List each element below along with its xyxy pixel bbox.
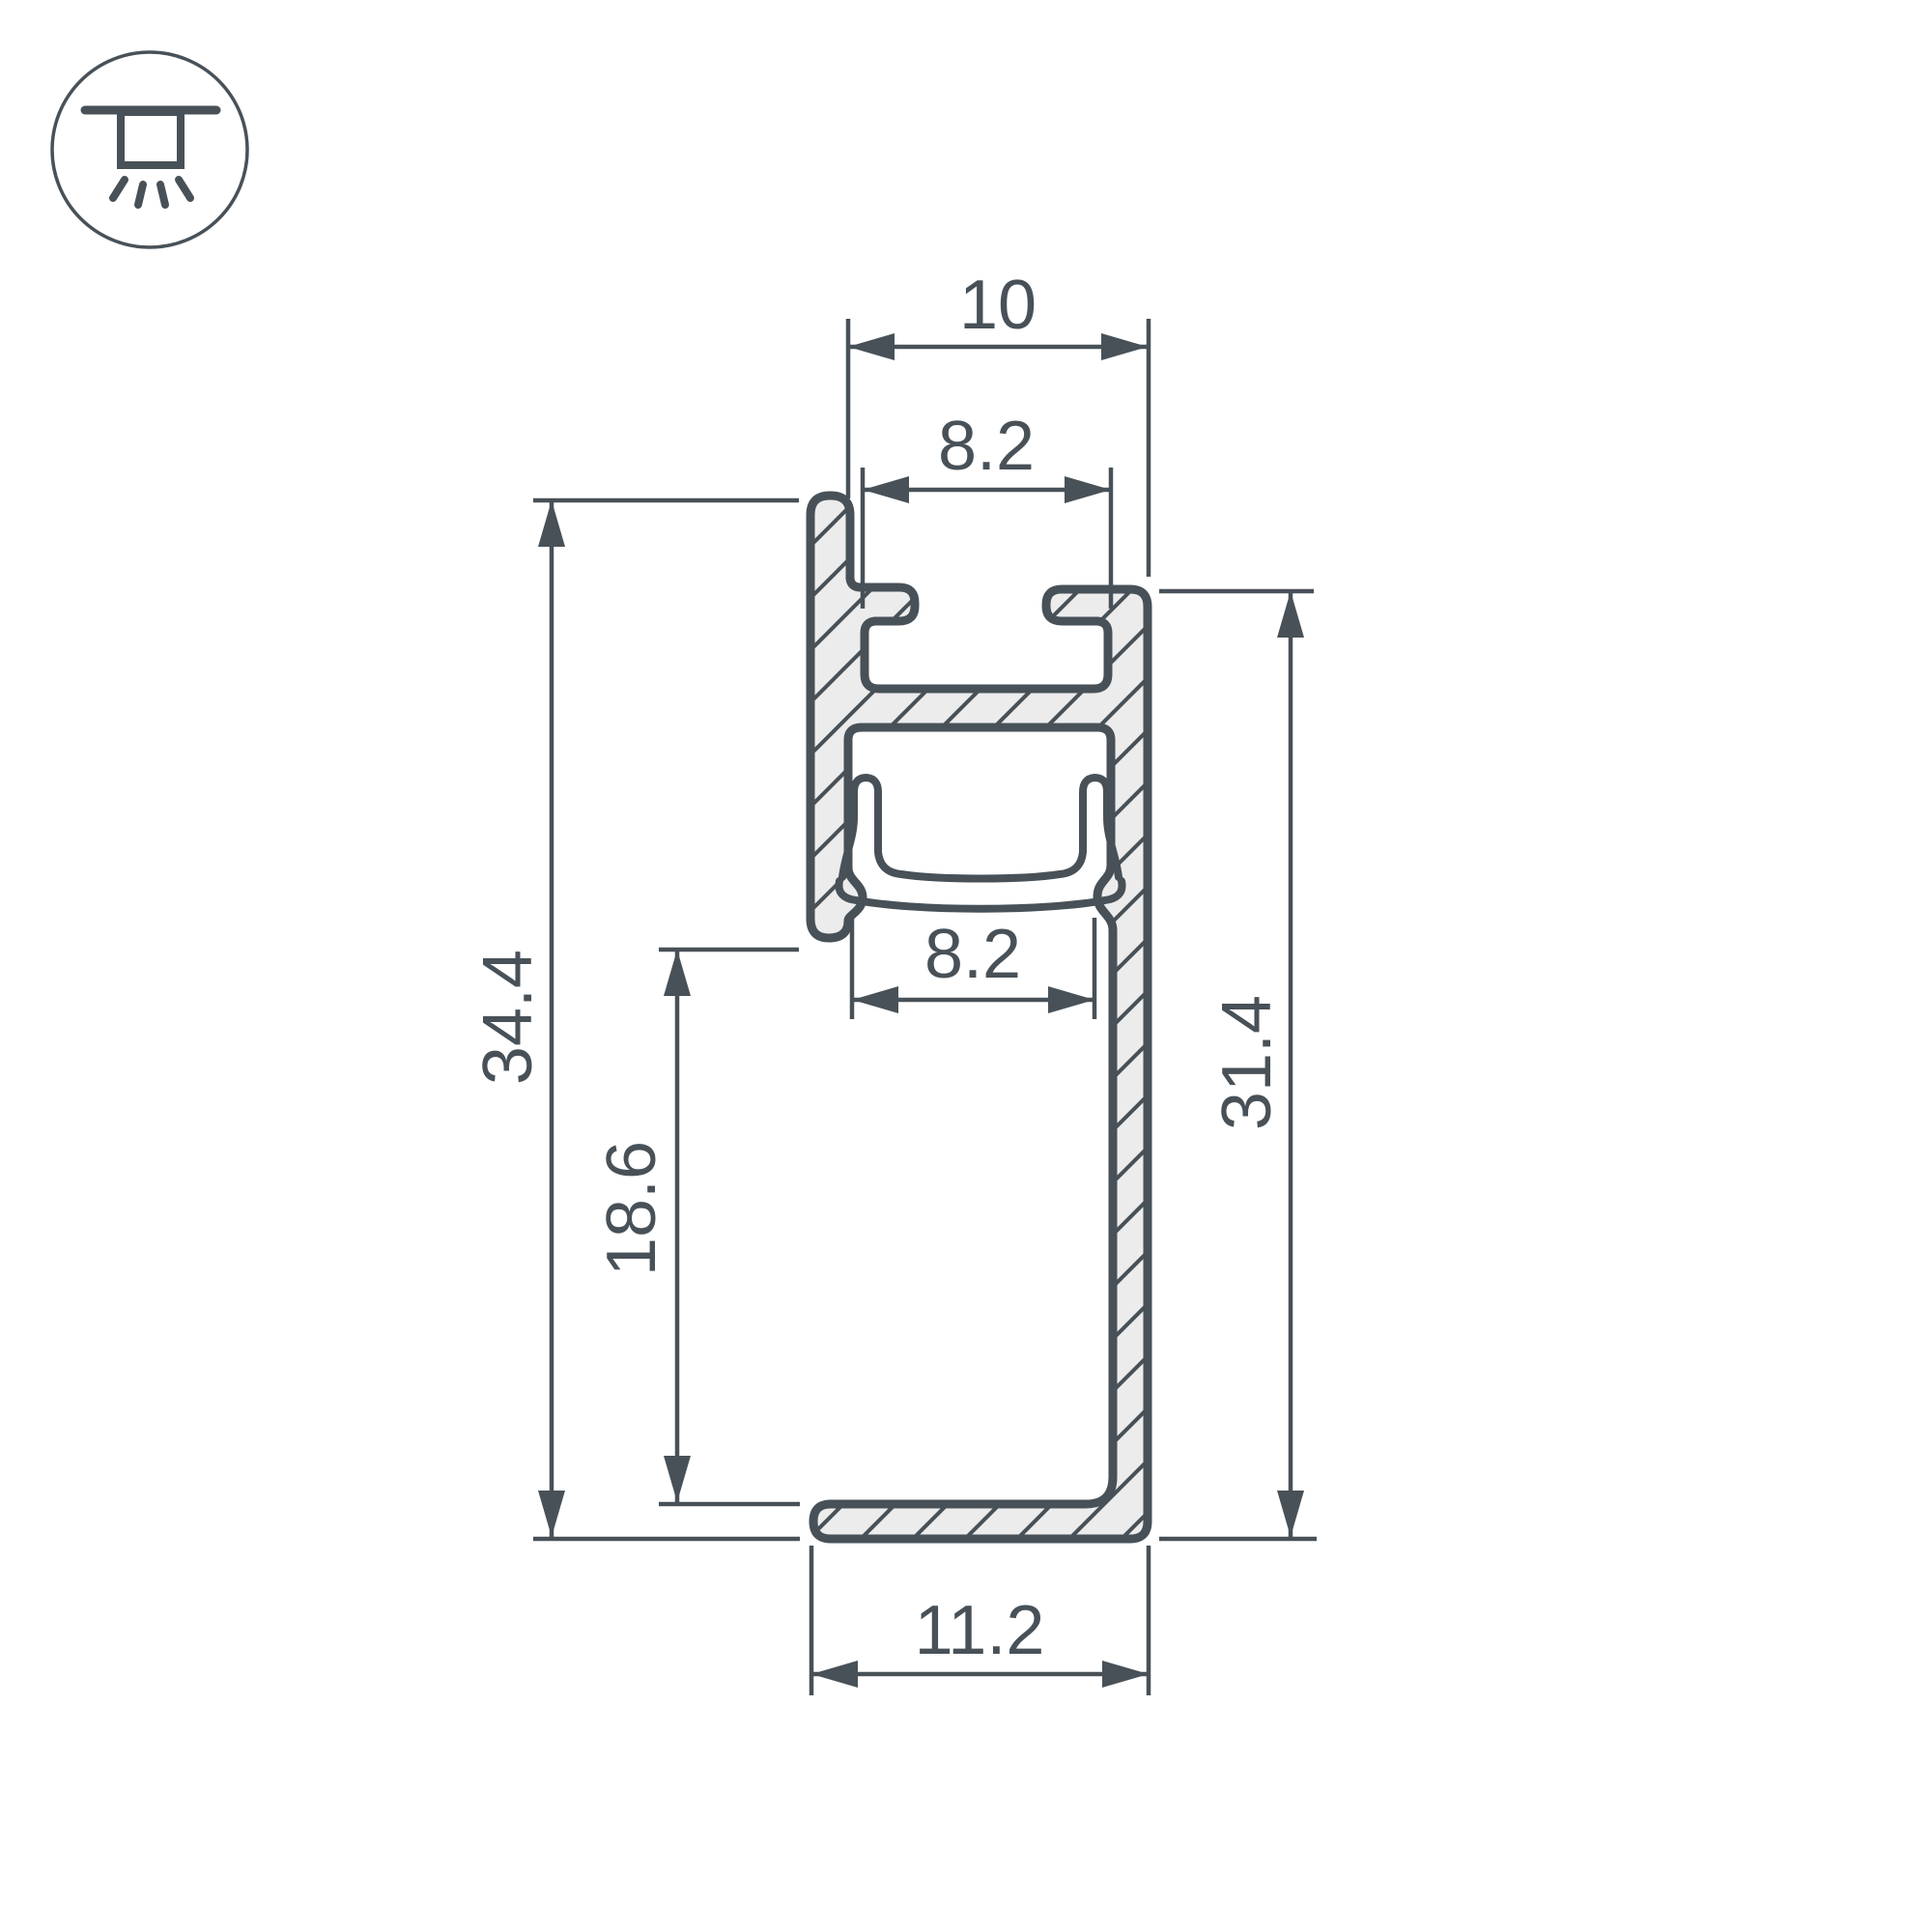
light-housing-icon <box>121 112 181 165</box>
arrowhead-down <box>664 1456 691 1502</box>
dim-bottom-width: 11.2 <box>811 1546 1149 1695</box>
arrowhead-down <box>538 1491 565 1537</box>
dim-label-slot-width: 8.2 <box>938 408 1035 485</box>
light-rays-icon <box>113 180 190 205</box>
arrowhead-up <box>538 500 565 547</box>
arrowhead-right <box>1101 333 1148 360</box>
arrowhead-right <box>1048 986 1094 1013</box>
dim-inner-height: 18.6 <box>593 950 800 1504</box>
dim-label-inner-height: 18.6 <box>593 1141 670 1276</box>
lens-shell <box>842 778 1119 879</box>
arrowhead-down <box>1277 1491 1304 1537</box>
profile-technical-drawing: 10 8.2 8.2 11.2 34.4 <box>0 0 1932 1932</box>
mount-type-icon <box>52 52 247 247</box>
dim-side-height: 31.4 <box>1159 591 1317 1539</box>
profile-cross-section <box>810 496 1148 1539</box>
diffuser-lens <box>839 778 1122 909</box>
arrowhead-right <box>1102 1661 1149 1688</box>
dim-slot-width: 8.2 <box>863 408 1111 609</box>
dim-diffuser-width: 8.2 <box>852 916 1094 1019</box>
arrowhead-up <box>1277 591 1304 638</box>
arrowhead-left <box>848 333 895 360</box>
profile-body-outline <box>810 496 1148 1539</box>
dim-label-bottom-width: 11.2 <box>915 1592 1045 1669</box>
dim-label-overall-height: 34.4 <box>469 950 547 1085</box>
arrowhead-up <box>664 950 691 996</box>
dim-label-side-height: 31.4 <box>1208 995 1286 1130</box>
arrowhead-left <box>811 1661 858 1688</box>
arrowhead-right <box>1065 476 1111 503</box>
dim-overall-height: 34.4 <box>469 500 800 1539</box>
arrowhead-left <box>863 476 909 503</box>
icon-circle <box>52 52 247 247</box>
arrowhead-left <box>852 986 898 1013</box>
dim-label-diffuser-width: 8.2 <box>924 916 1021 993</box>
drawing-canvas: 10 8.2 8.2 11.2 34.4 <box>0 0 1932 1932</box>
dim-label-top-width: 10 <box>959 267 1037 344</box>
lens-bottom-face <box>839 881 1122 909</box>
